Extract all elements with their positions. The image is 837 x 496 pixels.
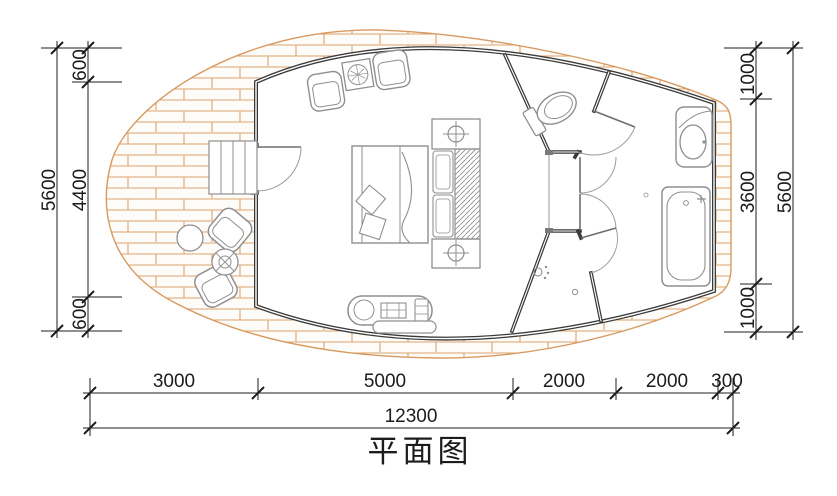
dim-bottom-1: 3000 (153, 371, 195, 392)
tub-drain-icon (684, 201, 689, 206)
bathtub (662, 187, 710, 286)
dim-right-bottom: 1000 (738, 287, 759, 329)
floor-plan-svg: 5600 600 4400 600 1000 3600 1000 5600 30… (0, 0, 837, 496)
outdoor-table (177, 225, 203, 251)
dim-bottom-5: 300 (711, 371, 743, 392)
side-table (342, 59, 374, 91)
dim-bottom-total: 12300 (385, 406, 438, 427)
armchair (372, 49, 411, 91)
dim-bottom-4: 2000 (646, 371, 688, 392)
dim-left-bottom: 600 (70, 298, 91, 330)
double-bed (352, 146, 428, 243)
dim-right-total: 5600 (775, 171, 796, 213)
dim-right-top: 1000 (738, 53, 759, 95)
armchair (306, 70, 345, 112)
door-jamb (545, 228, 553, 233)
outdoor-side-table (212, 249, 238, 275)
plan-title: 平面图 (368, 434, 473, 469)
sink-faucet-icon (702, 140, 705, 143)
staircase (209, 141, 257, 194)
wardrobe-unit (432, 119, 480, 268)
wardrobe-hanging (455, 149, 480, 239)
dim-right-middle: 3600 (738, 171, 759, 213)
dim-bottom-2: 5000 (364, 371, 406, 392)
dim-left-total: 5600 (39, 169, 60, 211)
dim-left-middle: 4400 (70, 169, 91, 211)
dim-left-top: 600 (70, 49, 91, 81)
floor-plan-page: 5600 600 4400 600 1000 3600 1000 5600 30… (0, 0, 837, 496)
door-jamb (545, 150, 553, 155)
bathroom-sink (676, 107, 712, 167)
dim-bottom-3: 2000 (543, 371, 585, 392)
